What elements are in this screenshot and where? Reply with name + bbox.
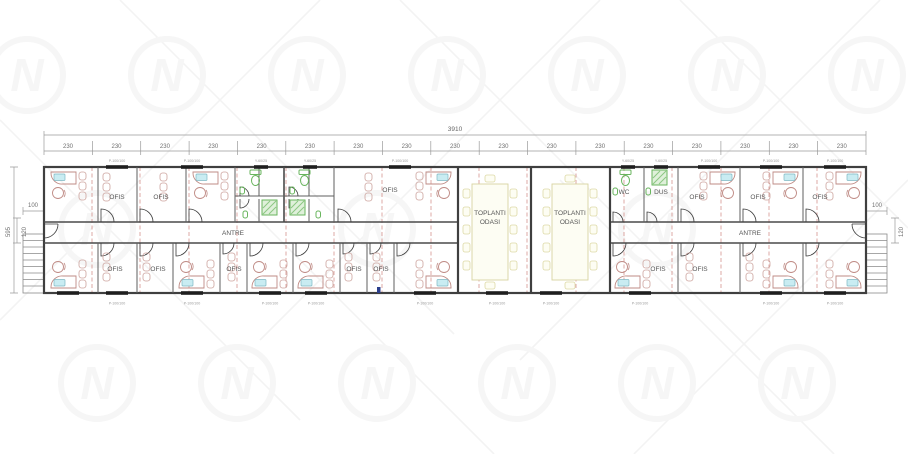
dim-bay: 230 <box>498 144 509 150</box>
desk-icon <box>193 172 228 200</box>
dim-bay: 230 <box>595 144 606 150</box>
sink-icon <box>613 188 618 195</box>
toilet-icon <box>620 170 631 186</box>
guest-chairs-icon <box>746 253 753 281</box>
room-label-meeting: ODASI <box>480 219 500 226</box>
svg-text:N: N <box>570 49 604 101</box>
sink-icon <box>240 187 245 194</box>
window-label: P-100/100 <box>543 302 560 306</box>
window-label: P-100/100 <box>109 159 126 163</box>
sink-icon <box>243 211 248 218</box>
svg-text:N: N <box>220 357 254 409</box>
floor-drain-icon <box>377 287 381 293</box>
watermark-layer: N N N N N N N N N N N N N N N N <box>0 0 908 454</box>
room-label-office: OFIS <box>689 194 705 201</box>
dim-bay: 230 <box>402 144 413 150</box>
desk-icon <box>252 260 287 288</box>
window-label: P-100/100 <box>763 302 780 306</box>
room-label-office: OFIS <box>692 266 708 273</box>
room-label-meeting: ODASI <box>560 219 580 226</box>
window-label: P-100/100 <box>184 159 201 163</box>
window-label: P-100/100 <box>827 159 844 163</box>
svg-text:N: N <box>360 357 394 409</box>
window-label: P-100/100 <box>417 302 434 306</box>
window-label: P-100/100 <box>392 159 409 163</box>
window-label: P-100/100 <box>763 159 780 163</box>
dim-bay: 230 <box>257 144 268 150</box>
room-label-shower: DUS <box>654 189 668 196</box>
svg-text:N: N <box>150 49 184 101</box>
shower-icon <box>290 200 305 215</box>
dim-bay: 230 <box>837 144 848 150</box>
svg-text:N: N <box>780 357 814 409</box>
dim-bay: 230 <box>111 144 122 150</box>
window-label: P-100/100 <box>109 302 126 306</box>
room-label-meeting: TOPLANTI <box>554 210 586 217</box>
room-label-hall: ANTRE <box>222 230 245 237</box>
dim-bay: 230 <box>692 144 703 150</box>
room-label-office: OFIS <box>750 194 766 201</box>
room-label-office: OFIS <box>150 266 166 273</box>
dim-bay: 230 <box>63 144 74 150</box>
window-label: Y-60/25 <box>304 159 316 163</box>
room-label-hall: ANTRE <box>739 230 762 237</box>
dim-bay: 230 <box>450 144 461 150</box>
sink-icon <box>316 211 321 218</box>
window-label: P-100/100 <box>489 302 506 306</box>
svg-text:N: N <box>290 49 324 101</box>
room-label-office: OFIS <box>346 266 362 273</box>
window-label: Y-60/25 <box>255 159 267 163</box>
window-label: P-100/100 <box>827 302 844 306</box>
watermark-icon: N N N N N N N N N N N N N N N N <box>0 39 903 419</box>
desk-icon <box>416 260 451 288</box>
meeting-room-1-table <box>463 175 517 289</box>
window-label: Y-60/25 <box>622 159 634 163</box>
window-label: P-100/100 <box>701 159 718 163</box>
dim-bay: 230 <box>208 144 219 150</box>
svg-text:N: N <box>80 357 114 409</box>
desk-icon <box>826 260 861 288</box>
window-label: P-100/100 <box>632 302 649 306</box>
window-label: Y-60/25 <box>655 159 667 163</box>
floor-plan-canvas: N N N N N N N N N N N N N N N N 3910 230… <box>0 0 908 454</box>
room-label-office: OFIS <box>382 187 398 194</box>
desk-icon <box>179 260 214 288</box>
stairs-right-icon <box>866 234 887 293</box>
room-label-office: OFIS <box>107 266 123 273</box>
svg-text:N: N <box>640 203 674 255</box>
dim-entry-width-left: 100 <box>28 203 39 209</box>
dim-entry-width-right: 100 <box>872 203 883 209</box>
svg-text:N: N <box>430 49 464 101</box>
room-label-office: OFIS <box>650 266 666 273</box>
room-label-office: OFIS <box>226 266 242 273</box>
svg-text:N: N <box>640 357 674 409</box>
dim-bay: 230 <box>788 144 799 150</box>
desk-icon <box>763 172 798 200</box>
desk-icon <box>763 260 798 288</box>
sanitary-fixtures <box>240 170 667 293</box>
shower-icon <box>652 170 667 185</box>
room-label-meeting: TOPLANTI <box>474 210 506 217</box>
floor-plan-page: N N N N N N N N N N N N N N N N 3910 230… <box>0 0 908 454</box>
dimension-lines: 3910 230 230 230 230 230 230 230 230 230… <box>44 126 866 155</box>
room-label-wc: WC <box>619 189 630 196</box>
svg-text:N: N <box>80 203 114 255</box>
dim-total: 3910 <box>448 126 463 133</box>
desk-icon <box>416 172 451 200</box>
room-label-office: OFIS <box>373 266 389 273</box>
desk-icon <box>700 172 735 200</box>
window-markers <box>57 165 846 295</box>
meeting-room-2-table <box>543 175 597 289</box>
svg-text:N: N <box>850 49 884 101</box>
room-label-office: OFIS <box>109 194 125 201</box>
module-grid-lines <box>92 167 817 293</box>
room-label-office: OFIS <box>153 194 169 201</box>
dim-bay: 230 <box>643 144 654 150</box>
dim-bay: 230 <box>353 144 364 150</box>
toilet-icon <box>299 170 310 186</box>
stairs-left-icon <box>23 234 44 293</box>
svg-text:N: N <box>710 49 744 101</box>
window-label: P-100/100 <box>184 302 201 306</box>
dim-entry-depth-right: 120 <box>899 226 905 237</box>
dim-height-total: 595 <box>6 226 12 237</box>
dim-bay: 230 <box>160 144 171 150</box>
dim-bay: 230 <box>547 144 558 150</box>
room-label-office: OFIS <box>812 194 828 201</box>
shower-icon <box>262 200 277 215</box>
window-label: P-100/100 <box>308 302 325 306</box>
svg-text:N: N <box>360 203 394 255</box>
window-label: P-100/100 <box>262 302 279 306</box>
svg-text:N: N <box>500 357 534 409</box>
svg-text:N: N <box>10 49 44 101</box>
sink-icon <box>290 187 295 194</box>
dim-bay: 230 <box>740 144 751 150</box>
desk-icon <box>826 172 861 200</box>
dim-bay: 230 <box>305 144 316 150</box>
